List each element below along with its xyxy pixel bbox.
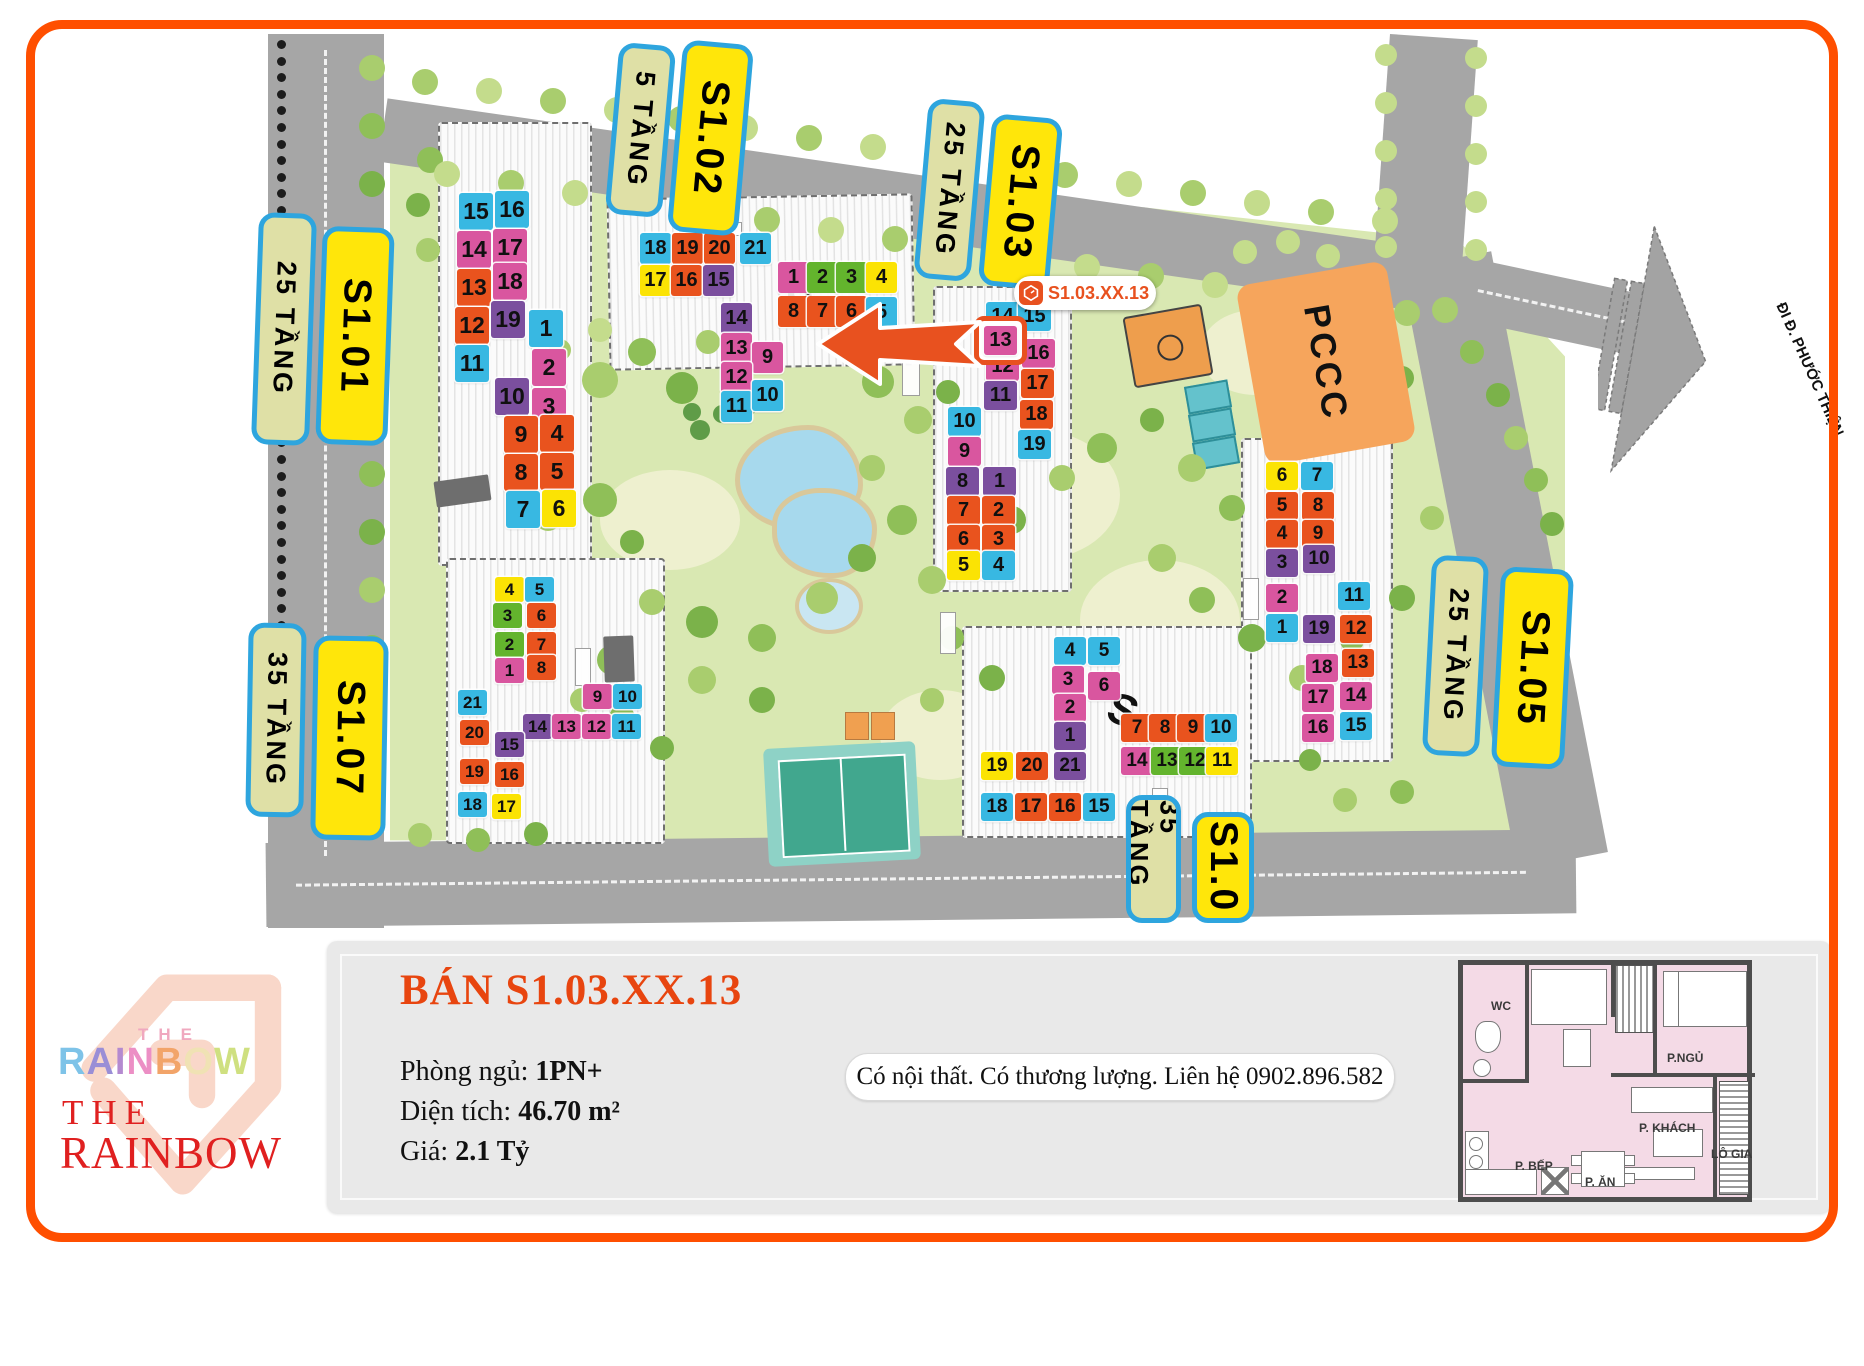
map-label-name-s104: S1.0 [1192, 812, 1254, 923]
unit-S1.07-6[interactable]: 6 [527, 603, 556, 628]
unit-S1.05-12[interactable]: 12 [1340, 615, 1372, 643]
tree-icon [1486, 383, 1510, 407]
tree-icon [620, 530, 644, 554]
tree-icon [1465, 95, 1487, 117]
tree-icon [1375, 236, 1397, 258]
unit-S1.01-10[interactable]: 10 [495, 378, 529, 415]
unit-S1.06-5[interactable]: 5 [1088, 637, 1120, 665]
tree-icon [476, 78, 502, 104]
unit-S1.02-20[interactable]: 20 [704, 233, 735, 264]
tree-icon [1372, 208, 1398, 234]
tree-icon [1178, 454, 1206, 482]
tree-icon [408, 823, 432, 847]
unit-S1.01-4[interactable]: 4 [540, 415, 574, 452]
unit-S1.06-1[interactable]: 1 [1054, 722, 1086, 750]
tree-icon [1148, 544, 1176, 572]
unit-S1.06-14[interactable]: 14 [1121, 747, 1153, 775]
tree-icon [1333, 788, 1357, 812]
basketball-court [1122, 304, 1213, 389]
callout-text: S1.03.XX.13 [1048, 283, 1149, 304]
tree-icon [1524, 468, 1548, 492]
tree-icon [650, 736, 674, 760]
tree-icon [1420, 506, 1444, 530]
floorplan-thumbnail: WCP.NGỦP. KHÁCHP. BẾPP. ĂNLÔ GIA [1458, 960, 1752, 1202]
tree-icon [1375, 188, 1397, 210]
playground-pad [871, 712, 895, 740]
unit-S1.02-16[interactable]: 16 [671, 265, 702, 296]
map-label-floors-s105: 25 TẦNG [1422, 555, 1489, 758]
unit-S1.05-8[interactable]: 8 [1302, 492, 1334, 520]
tree-icon [359, 519, 385, 545]
tree-icon [979, 665, 1005, 691]
unit-S1.03-2[interactable]: 2 [982, 496, 1015, 525]
unit-S1.06-15[interactable]: 15 [1083, 793, 1115, 821]
unit-S1.03-11[interactable]: 11 [984, 381, 1017, 410]
unit-S1.07-7[interactable]: 7 [527, 632, 556, 657]
tree-icon [1116, 171, 1142, 197]
street-bead [277, 123, 286, 132]
unit-S1.07-20[interactable]: 20 [460, 720, 489, 745]
unit-S1.06-19[interactable]: 19 [981, 752, 1013, 780]
unit-S1.03-10[interactable]: 10 [948, 407, 981, 436]
unit-S1.01-15[interactable]: 15 [459, 193, 493, 230]
tree-icon [1375, 140, 1397, 162]
unit-S1.05-11[interactable]: 11 [1338, 582, 1370, 610]
tree-icon [796, 125, 822, 151]
tree-icon [1189, 587, 1215, 613]
sink-icon [1473, 1059, 1491, 1077]
unit-S1.07-12[interactable]: 12 [582, 714, 611, 739]
tree-icon [887, 505, 917, 535]
street-bead [277, 173, 286, 182]
tree-icon [359, 171, 385, 197]
street-bead [277, 555, 286, 564]
unit-S1.05-17[interactable]: 17 [1302, 684, 1334, 712]
unit-S1.05-6[interactable]: 6 [1266, 462, 1298, 490]
tree-icon [920, 688, 944, 712]
tree-icon [1465, 239, 1487, 261]
tree-icon [859, 455, 885, 481]
unit-S1.03-19[interactable]: 19 [1018, 430, 1051, 459]
unit-S1.05-16[interactable]: 16 [1302, 714, 1334, 742]
unit-S1.07-3[interactable]: 3 [493, 603, 522, 628]
unit-S1.07-8[interactable]: 8 [527, 655, 556, 680]
bedrooms-value: 1PN+ [535, 1056, 602, 1087]
unit-S1.01-6[interactable]: 6 [542, 490, 576, 527]
street-bead [277, 140, 286, 149]
tree-icon [359, 577, 385, 603]
brand-rainbow-red: RAINBOW [60, 1127, 282, 1179]
unit-S1.03-13[interactable]: 13 [984, 326, 1017, 355]
unit-S1.03-5[interactable]: 5 [947, 551, 980, 580]
tree-icon [562, 180, 588, 206]
unit-S1.06-6[interactable]: 6 [1088, 672, 1120, 700]
unit-S1.01-16[interactable]: 16 [495, 191, 529, 228]
tree-icon [1465, 191, 1487, 213]
area-label: Diện tích: [400, 1096, 518, 1127]
tree-icon [1087, 433, 1117, 463]
unit-S1.03-18[interactable]: 18 [1020, 400, 1053, 429]
tree-icon [1180, 180, 1206, 206]
unit-S1.02-17[interactable]: 17 [640, 265, 671, 296]
unit-S1.02-2[interactable]: 2 [807, 262, 838, 293]
pccc-building: PCCC [1235, 260, 1416, 466]
unit-S1.07-13[interactable]: 13 [552, 714, 581, 739]
plan-annotation [575, 648, 591, 686]
room-label-bedroom: P.NGỦ [1667, 1051, 1703, 1065]
unit-S1.06-17[interactable]: 17 [1015, 793, 1047, 821]
room-label-living: P. KHÁCH [1639, 1121, 1695, 1135]
room-label-loggia: LÔ GIA [1711, 1147, 1752, 1161]
listing-bedrooms: Phòng ngủ: 1PN+ [400, 1056, 603, 1088]
lawn [600, 470, 740, 570]
tree-icon [1465, 143, 1487, 165]
tree-icon [628, 338, 656, 366]
road-direction-arrow-icon [1598, 225, 1718, 490]
street-bead [277, 40, 286, 49]
tree-icon [1244, 190, 1270, 216]
unit-S1.06-4[interactable]: 4 [1054, 637, 1086, 665]
unit-S1.01-19[interactable]: 19 [491, 301, 525, 338]
unit-S1.02-9[interactable]: 9 [752, 342, 783, 373]
unit-S1.05-3[interactable]: 3 [1266, 549, 1298, 577]
desk-icon [1563, 1029, 1591, 1067]
unit-S1.07-2[interactable]: 2 [495, 632, 524, 657]
unit-S1.07-1[interactable]: 1 [495, 658, 524, 683]
sofa-icon [1631, 1087, 1713, 1113]
tree-icon [1308, 199, 1334, 225]
map-label-name-s101: S1.01 [315, 226, 395, 446]
tree-icon [749, 687, 775, 713]
unit-S1.07-14[interactable]: 14 [523, 714, 552, 739]
unit-S1.01-12[interactable]: 12 [455, 307, 489, 344]
unit-S1.02-15[interactable]: 15 [703, 265, 734, 296]
tree-icon [882, 226, 908, 252]
price-value: 2.1 Tỷ [455, 1136, 529, 1167]
unit-S1.01-8[interactable]: 8 [504, 454, 538, 491]
tree-icon [1238, 624, 1266, 652]
bed-icon [1531, 969, 1607, 1025]
map-label-name-s107: S1.07 [310, 635, 389, 840]
tree-icon [583, 483, 617, 517]
tree-icon [848, 544, 876, 572]
tree-icon [1504, 426, 1528, 450]
tree-icon [1140, 408, 1164, 432]
tree-icon [359, 55, 385, 81]
tree-icon [696, 330, 720, 354]
map-label-floors-s104: 35 TẦNG [1126, 795, 1181, 923]
street-bead [277, 455, 286, 464]
unit-S1.01-1[interactable]: 1 [529, 310, 563, 347]
unit-S1.02-21[interactable]: 21 [740, 233, 771, 264]
pergola [603, 635, 635, 682]
unit-S1.06-10[interactable]: 10 [1205, 714, 1237, 742]
tree-icon [1299, 749, 1321, 771]
listing-note-pill: Có nội thất. Có thương lượng. Liên hệ 09… [845, 1053, 1395, 1101]
tree-icon [1460, 340, 1484, 364]
street-bead [277, 57, 286, 66]
tennis-court [763, 741, 921, 867]
unit-S1.07-10[interactable]: 10 [613, 684, 642, 709]
tree-icon [748, 624, 776, 652]
unit-S1.06-3[interactable]: 3 [1052, 666, 1084, 694]
unit-S1.02-13[interactable]: 13 [721, 333, 752, 364]
tree-icon [1233, 240, 1257, 264]
unit-S1.05-18[interactable]: 18 [1306, 654, 1338, 682]
tree-icon [860, 134, 886, 160]
unit-S1.07-18[interactable]: 18 [458, 792, 487, 817]
tree-icon [683, 403, 701, 421]
unit-S1.06-21[interactable]: 21 [1054, 752, 1086, 780]
unit-S1.01-2[interactable]: 2 [532, 349, 566, 386]
unit-S1.01-11[interactable]: 11 [455, 345, 489, 382]
map-label-floors-s107: 35 TẦNG [245, 623, 306, 818]
tree-icon [1394, 300, 1420, 326]
playground-pad [845, 712, 869, 740]
tree-icon [524, 822, 548, 846]
tree-icon [918, 566, 946, 594]
unit-S1.06-18[interactable]: 18 [981, 793, 1013, 821]
tree-icon [359, 461, 385, 487]
unit-S1.01-14[interactable]: 14 [457, 231, 491, 268]
tree-icon [359, 113, 385, 139]
street-bead [277, 505, 286, 514]
tree-icon [1465, 47, 1487, 69]
listing-area: Diện tích: 46.70 m² [400, 1096, 620, 1128]
map-label-floors-s101: 25 TẦNG [251, 212, 317, 446]
unit-S1.05-5[interactable]: 5 [1266, 492, 1298, 520]
unit-S1.01-5[interactable]: 5 [540, 453, 574, 490]
unit-S1.05-9[interactable]: 9 [1302, 520, 1334, 548]
tree-icon [690, 420, 710, 440]
unit-S1.03-3[interactable]: 3 [982, 525, 1015, 554]
tree-icon [806, 582, 838, 614]
street-bead [277, 538, 286, 547]
unit-S1.01-13[interactable]: 13 [457, 269, 491, 306]
unit-S1.07-11[interactable]: 11 [612, 714, 641, 739]
unit-S1.03-6[interactable]: 6 [947, 525, 980, 554]
tree-icon [686, 606, 718, 638]
unit-S1.06-16[interactable]: 16 [1049, 793, 1081, 821]
tree-icon [1540, 512, 1564, 536]
toilet-icon [1475, 1021, 1501, 1053]
room-label-kitchen: P. BẾP [1515, 1159, 1553, 1173]
unit-S1.03-9[interactable]: 9 [948, 437, 981, 466]
unit-S1.01-7[interactable]: 7 [506, 491, 540, 528]
unit-S1.05-19[interactable]: 19 [1303, 615, 1335, 643]
unit-S1.02-3[interactable]: 3 [836, 262, 867, 293]
unit-S1.05-7[interactable]: 7 [1301, 462, 1333, 490]
unit-S1.02-18[interactable]: 18 [640, 233, 671, 264]
unit-S1.02-8[interactable]: 8 [778, 296, 809, 327]
listing-flyer: PCCC S S ĐI Đ. PHƯỚC THIỆN S1.0 [0, 0, 1864, 1366]
unit-S1.07-15[interactable]: 15 [495, 732, 524, 757]
tree-icon [466, 828, 490, 852]
unit-S1.02-12[interactable]: 12 [721, 362, 752, 393]
unit-S1.06-11[interactable]: 11 [1206, 747, 1238, 775]
unit-S1.02-14[interactable]: 14 [721, 303, 752, 334]
unit-S1.02-10[interactable]: 10 [752, 380, 783, 411]
map-label-name-s105: S1.05 [1491, 566, 1574, 770]
unit-S1.03-4[interactable]: 4 [982, 551, 1015, 580]
tree-icon [818, 217, 844, 243]
area-value: 46.70 m² [518, 1096, 620, 1127]
tree-icon [639, 589, 665, 615]
unit-S1.03-8[interactable]: 8 [946, 467, 979, 496]
room-label-dining: P. ĂN [1585, 1175, 1615, 1189]
tree-icon [1276, 230, 1300, 254]
tree-icon [904, 406, 932, 434]
unit-callout: S1.03.XX.13 [1014, 276, 1156, 310]
tree-icon [412, 69, 438, 95]
unit-S1.03-7[interactable]: 7 [947, 496, 980, 525]
unit-S1.05-2[interactable]: 2 [1266, 584, 1298, 612]
street-bead [277, 472, 286, 481]
unit-S1.05-10[interactable]: 10 [1303, 545, 1335, 573]
tree-icon [540, 88, 566, 114]
unit-S1.01-18[interactable]: 18 [493, 263, 527, 300]
tree-icon [688, 666, 716, 694]
unit-S1.02-11[interactable]: 11 [721, 391, 752, 422]
unit-S1.03-17[interactable]: 17 [1021, 369, 1054, 398]
listing-price: Giá: 2.1 Tỷ [400, 1136, 529, 1168]
unit-S1.07-4[interactable]: 4 [495, 577, 524, 602]
tree-icon [1049, 465, 1075, 491]
road-destination-label: ĐI Đ. PHƯỚC THIỆN [1772, 300, 1846, 439]
unit-S1.05-14[interactable]: 14 [1340, 682, 1372, 710]
tree-icon [1375, 92, 1397, 114]
tree-icon [1316, 244, 1340, 268]
street-bead [277, 90, 286, 99]
tree-icon [416, 238, 440, 262]
tree-icon [434, 161, 460, 187]
map-label-name-s103: S1.03 [978, 113, 1064, 291]
unit-S1.06-2[interactable]: 2 [1054, 694, 1086, 722]
tree-icon [1432, 297, 1458, 323]
tree-icon [1219, 495, 1245, 521]
unit-S1.01-9[interactable]: 9 [504, 416, 538, 453]
unit-S1.07-21[interactable]: 21 [458, 690, 487, 715]
tree-icon [582, 362, 618, 398]
unit-S1.07-5[interactable]: 5 [525, 577, 554, 602]
unit-S1.02-1[interactable]: 1 [778, 262, 809, 293]
tree-icon [406, 193, 430, 217]
pointer-arrow-icon [808, 296, 988, 392]
unit-S1.07-16[interactable]: 16 [495, 762, 524, 787]
street-bead [277, 588, 286, 597]
unit-S1.02-4[interactable]: 4 [866, 262, 897, 293]
rainbow-logo-icon [1019, 281, 1043, 305]
unit-S1.05-4[interactable]: 4 [1266, 520, 1298, 548]
bedrooms-label: Phòng ngủ: [400, 1056, 535, 1087]
unit-S1.07-19[interactable]: 19 [460, 759, 489, 784]
tree-icon [1390, 780, 1414, 804]
unit-S1.05-13[interactable]: 13 [1342, 649, 1374, 677]
unit-S1.03-1[interactable]: 1 [983, 467, 1016, 496]
listing-title: BÁN S1.03.XX.13 [400, 966, 742, 1015]
plan-annotation [1243, 578, 1259, 620]
tree-icon [666, 372, 698, 404]
unit-S1.05-1[interactable]: 1 [1266, 614, 1298, 642]
unit-S1.02-19[interactable]: 19 [672, 233, 703, 264]
unit-S1.05-15[interactable]: 15 [1340, 712, 1372, 740]
unit-S1.07-17[interactable]: 17 [492, 794, 521, 819]
room-label-wc: WC [1491, 999, 1511, 1013]
plan-annotation [940, 612, 956, 654]
unit-S1.01-17[interactable]: 17 [493, 229, 527, 266]
price-label: Giá: [400, 1136, 455, 1167]
brand-rainbow-gradient: RAINBOW [58, 1041, 251, 1084]
tree-icon [1389, 585, 1415, 611]
unit-S1.06-20[interactable]: 20 [1016, 752, 1048, 780]
tree-icon [588, 318, 612, 342]
brand-logo: THE RAINBOW THE RAINBOW [50, 945, 310, 1215]
tree-icon [1375, 44, 1397, 66]
unit-S1.07-9[interactable]: 9 [583, 684, 612, 709]
